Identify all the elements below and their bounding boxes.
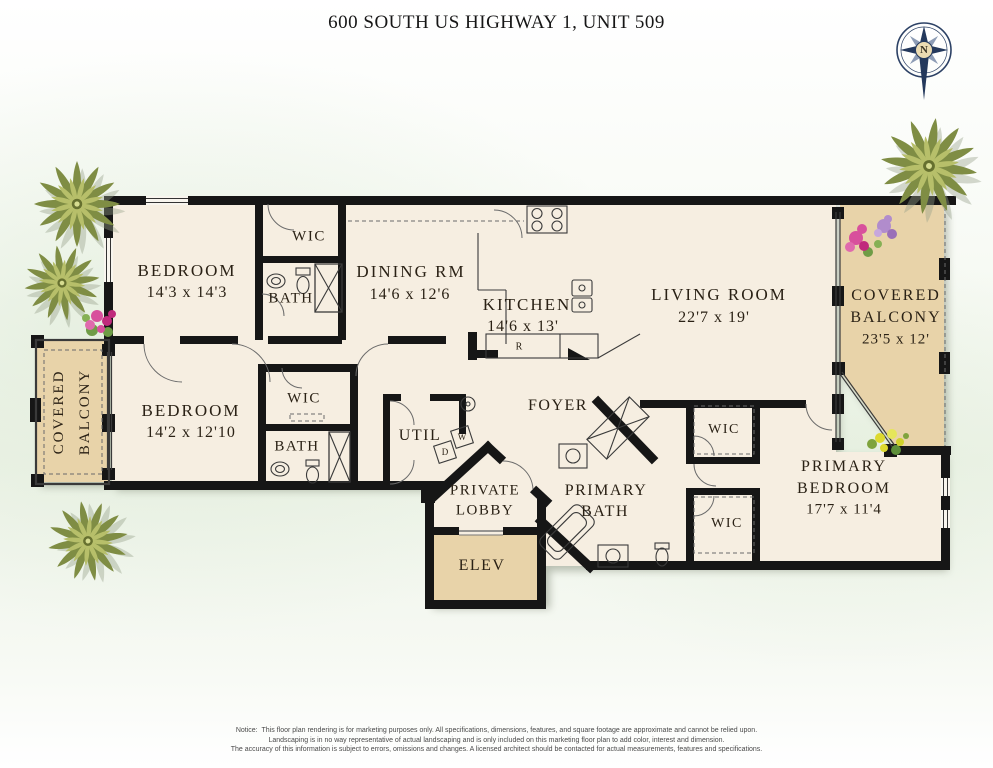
room-label-bedroom1-name: BEDROOM bbox=[137, 261, 236, 281]
room-label-living-dims: 22'7 x 19' bbox=[678, 309, 750, 327]
room-label-dining-dims: 14'6 x 12'6 bbox=[370, 286, 451, 304]
room-label-primary-bedroom-2: BEDROOM bbox=[797, 480, 891, 498]
room-label-primary-bath-1: PRIMARY bbox=[565, 482, 648, 500]
room-label-util: UTIL bbox=[399, 427, 441, 445]
washer-label: W bbox=[458, 432, 467, 442]
refrigerator-label: R bbox=[516, 342, 523, 353]
notice-text-1: This floor plan rendering is for marketi… bbox=[262, 727, 758, 734]
room-label-balcony-left: COVERED BALCONY bbox=[46, 369, 98, 456]
room-label-dining-name: DINING RM bbox=[356, 262, 465, 282]
room-label-balcony-right-2: BALCONY bbox=[850, 309, 941, 327]
room-label-bedroom1-dims: 14'3 x 14'3 bbox=[147, 284, 228, 302]
room-label-primary-bedroom-dims: 17'7 x 11'4 bbox=[806, 502, 882, 519]
room-label-balcony-left-2: BALCONY bbox=[72, 369, 98, 456]
room-label-bedroom2-dims: 14'2 x 12'10 bbox=[146, 424, 236, 442]
room-label-lobby-1: PRIVATE bbox=[450, 483, 520, 500]
room-label-kitchen-name: KITCHEN bbox=[483, 295, 572, 315]
floorplan-drawing bbox=[0, 0, 993, 768]
disclaimer: Notice: This floor plan rendering is for… bbox=[0, 726, 993, 755]
room-label-wic3: WIC bbox=[708, 422, 740, 438]
room-label-kitchen-dims: 14'6 x 13' bbox=[487, 318, 559, 336]
room-label-wic1: WIC bbox=[292, 229, 326, 246]
room-label-balcony-right-1: COVERED bbox=[851, 287, 941, 305]
room-label-primary-bedroom-1: PRIMARY bbox=[801, 458, 887, 476]
room-label-balcony-left-1: COVERED bbox=[46, 369, 72, 456]
room-label-bedroom2-name: BEDROOM bbox=[141, 401, 240, 421]
disclaimer-line-2: Landscaping is in no way representative … bbox=[0, 736, 993, 746]
room-label-balcony-right-dims: 23'5 x 12' bbox=[862, 332, 930, 349]
disclaimer-line-3: The accuracy of this information is subj… bbox=[0, 745, 993, 755]
compass-rose-icon bbox=[897, 23, 951, 100]
room-label-lobby-2: LOBBY bbox=[456, 503, 514, 520]
room-label-elevator: ELEV bbox=[459, 557, 506, 575]
room-label-primary-bath-2: BATH bbox=[581, 503, 629, 521]
compass-north-label: N bbox=[920, 44, 928, 56]
floorplan-page: 600 SOUTH US HIGHWAY 1, UNIT 509 bbox=[0, 0, 993, 768]
room-label-living-name: LIVING ROOM bbox=[651, 285, 787, 305]
room-label-wic2: WIC bbox=[287, 391, 321, 408]
room-label-wic4: WIC bbox=[711, 516, 743, 532]
room-label-bath2: BATH bbox=[274, 439, 319, 456]
room-label-foyer: FOYER bbox=[528, 397, 588, 415]
disclaimer-line-1: Notice: This floor plan rendering is for… bbox=[0, 726, 993, 736]
room-label-bath1: BATH bbox=[268, 291, 313, 308]
dryer-label: D bbox=[442, 447, 449, 457]
notice-label: Notice: bbox=[236, 727, 258, 734]
